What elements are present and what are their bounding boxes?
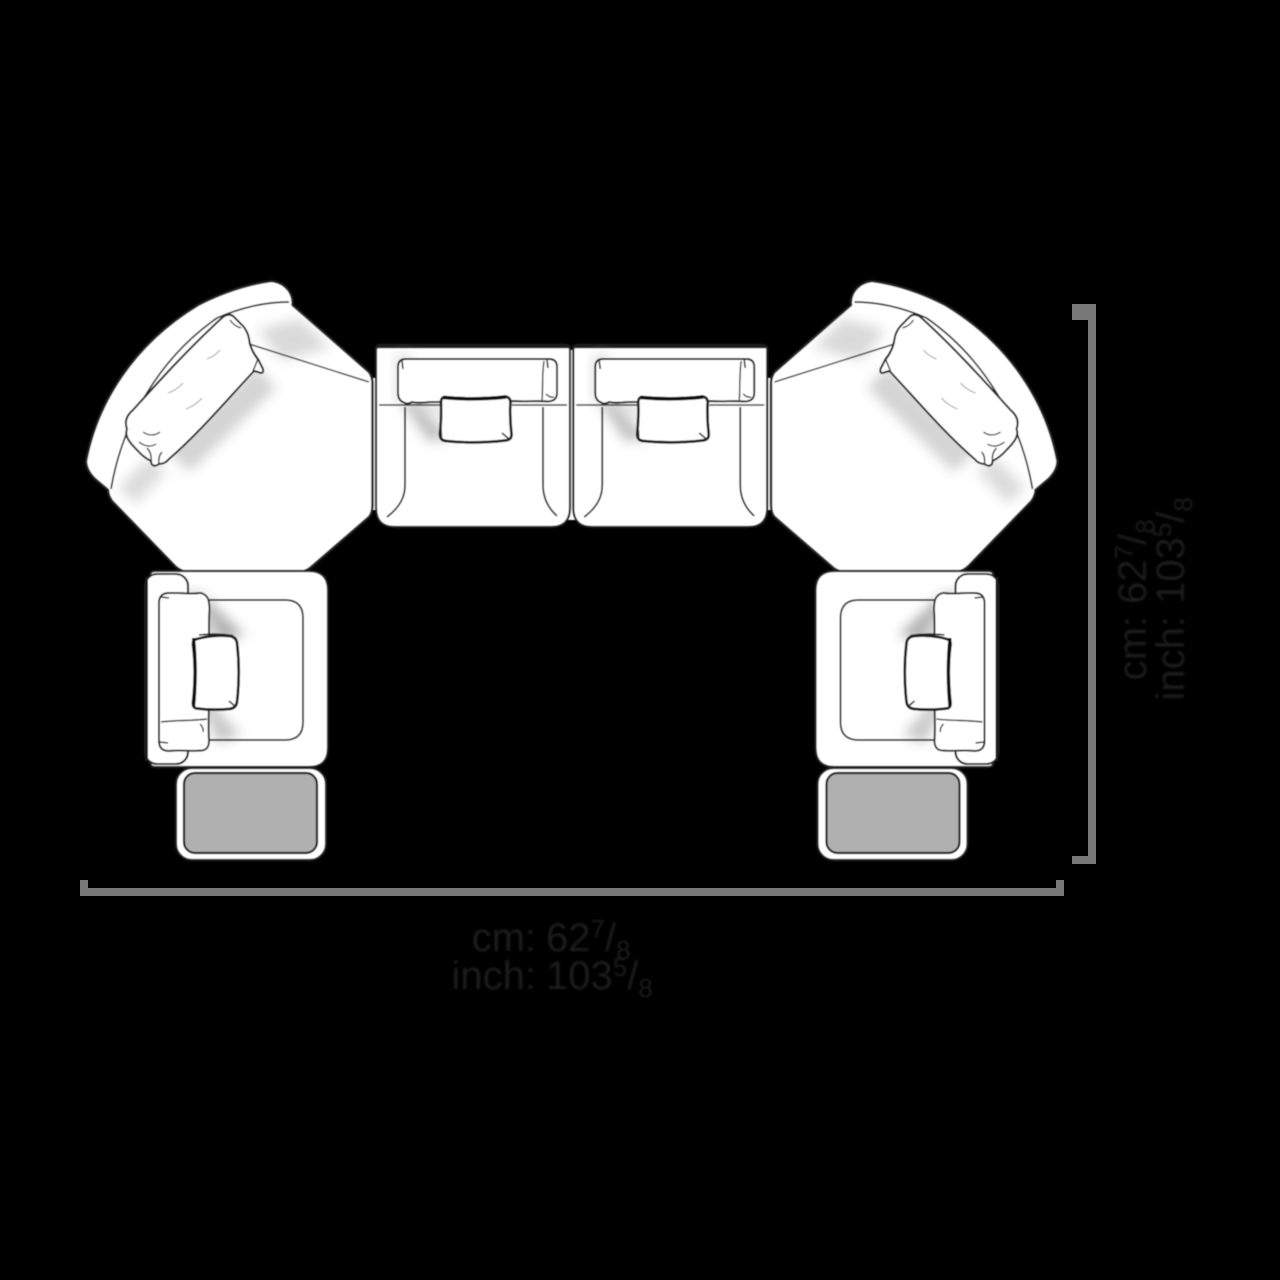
- svg-text:inch:: inch:: [1149, 616, 1193, 701]
- svg-text:inch:: inch:: [452, 954, 537, 998]
- svg-text:1035/8: 1035/8: [1147, 497, 1198, 604]
- svg-text:1035/8: 1035/8: [546, 952, 653, 1003]
